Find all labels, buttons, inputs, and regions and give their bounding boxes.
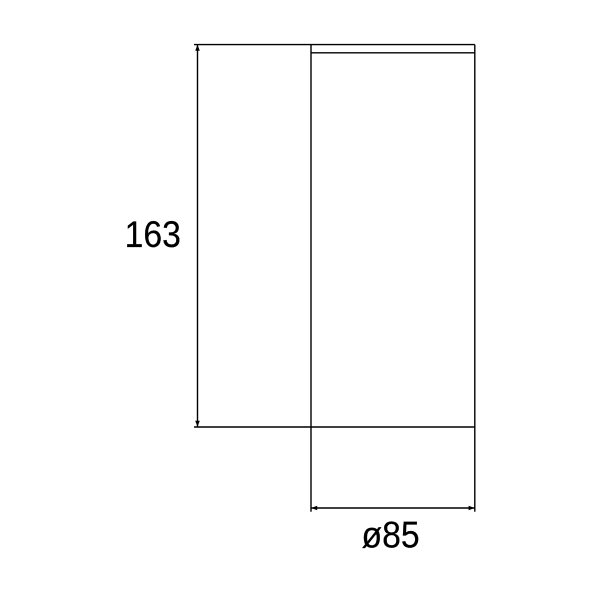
- svg-text:163: 163: [125, 213, 181, 255]
- svg-text:ø85: ø85: [362, 514, 420, 556]
